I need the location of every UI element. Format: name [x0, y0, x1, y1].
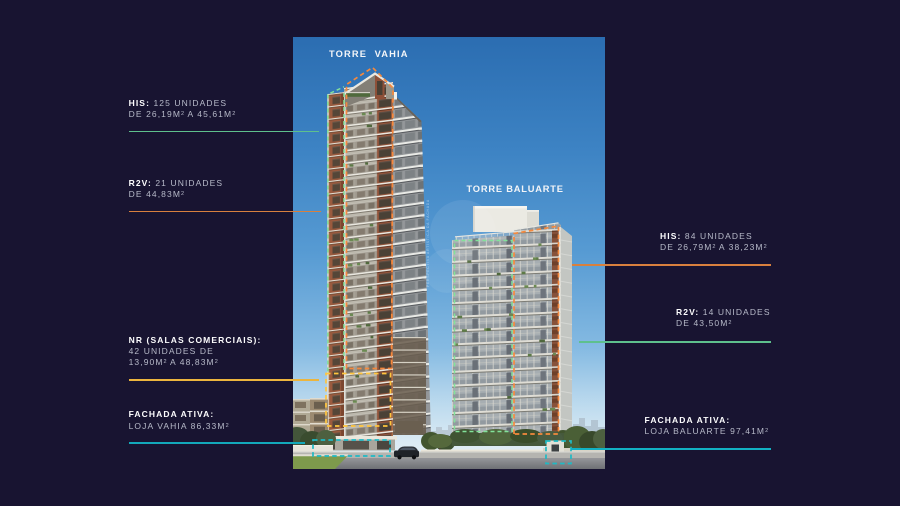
svg-text:PERSPECTIVA ARTÍSTICA DA FACHA: PERSPECTIVA ARTÍSTICA DA FACHADA	[426, 199, 430, 287]
